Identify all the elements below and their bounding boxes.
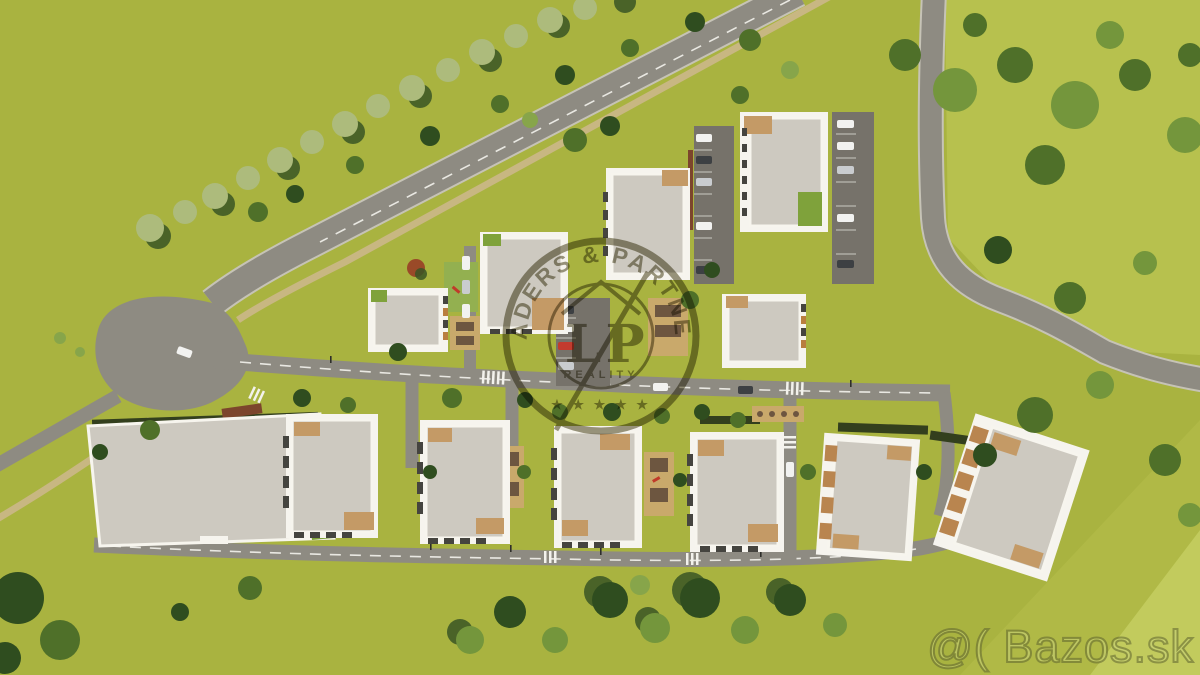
bazos-watermark: @( Bazos.sk: [927, 621, 1194, 673]
logo-monogram-p: P: [605, 314, 644, 375]
logo-subtext: REALITY: [563, 369, 638, 381]
logo-monogram-l: L: [565, 314, 602, 375]
watermark-logo: LEADERS & PARTNERS L P REALITY ★ ★ ★ ★ ★: [0, 0, 1200, 675]
star-icons: ★ ★ ★ ★ ★: [551, 397, 651, 412]
aerial-render: LEADERS & PARTNERS L P REALITY ★ ★ ★ ★ ★…: [0, 0, 1200, 675]
